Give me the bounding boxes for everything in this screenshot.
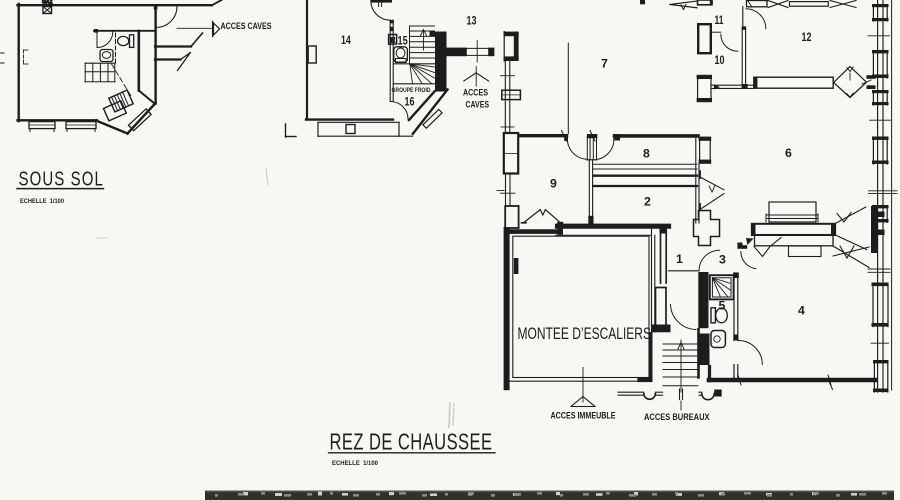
- svg-text:GAZ: GAZ: [42, 0, 53, 6]
- svg-text:9: 9: [550, 177, 557, 191]
- svg-text:ACCES CAVES: ACCES CAVES: [221, 21, 272, 32]
- svg-text:4: 4: [798, 304, 805, 318]
- svg-text:ECHELLE 1/100: ECHELLE 1/100: [332, 460, 378, 467]
- svg-text:REZ DE CHAUSSEE: REZ DE CHAUSSEE: [330, 429, 493, 455]
- svg-text:E: E: [390, 36, 395, 45]
- svg-text:13: 13: [467, 14, 477, 28]
- svg-text:7: 7: [601, 57, 608, 71]
- svg-text:SOUS SOL: SOUS SOL: [19, 168, 105, 191]
- svg-text:ACCES BUREAUX: ACCES BUREAUX: [644, 412, 710, 423]
- svg-text:CAVES: CAVES: [466, 100, 490, 111]
- svg-text:ACCES: ACCES: [463, 88, 488, 99]
- svg-text:6: 6: [785, 146, 792, 160]
- svg-text:14: 14: [341, 33, 351, 47]
- svg-text:3: 3: [719, 253, 726, 267]
- svg-text:10: 10: [715, 53, 725, 67]
- svg-text:5: 5: [719, 299, 726, 313]
- svg-text:ACCES IMMEUBLE: ACCES IMMEUBLE: [551, 411, 616, 422]
- svg-text:MONTEE D’ESCALIERS: MONTEE D’ESCALIERS: [518, 324, 652, 343]
- svg-text:16: 16: [405, 95, 415, 109]
- svg-text:ECHELLE 1/100: ECHELLE 1/100: [20, 198, 64, 205]
- svg-text:1: 1: [676, 252, 683, 266]
- svg-text:8: 8: [643, 147, 650, 161]
- svg-text:2: 2: [644, 195, 651, 209]
- svg-text:12: 12: [802, 30, 812, 44]
- svg-text:GROUPE FROID: GROUPE FROID: [392, 87, 431, 94]
- svg-text:15: 15: [398, 34, 408, 48]
- svg-text:11: 11: [715, 13, 724, 27]
